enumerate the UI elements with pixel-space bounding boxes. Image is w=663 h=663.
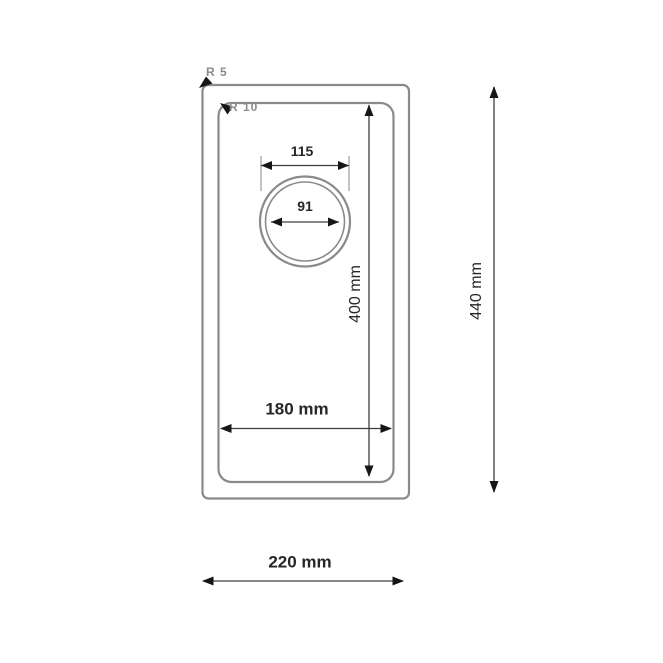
- dim-91-arrow-left-icon: [271, 218, 282, 227]
- dim-91-arrow-right-icon: [328, 218, 339, 227]
- dim-400: [365, 105, 374, 478]
- r10-callout-label: R 10: [229, 101, 258, 113]
- dim-440-arrow-top-icon: [490, 86, 499, 98]
- dim-115: [261, 156, 349, 191]
- dim-180-arrow-right-icon: [381, 424, 393, 433]
- dim-220-label: 220 mm: [268, 554, 331, 571]
- dim-400-arrow-top-icon: [365, 105, 374, 117]
- dim-180-arrow-left-icon: [220, 424, 232, 433]
- dim-400-label: 400 mm: [347, 262, 365, 326]
- dim-220-arrow-right-icon: [393, 577, 405, 586]
- sink-dimension-drawing: R 5 R 10 115 91 400 mm 440 mm 180 mm 220…: [0, 0, 663, 663]
- dim-220-arrow-left-icon: [202, 577, 214, 586]
- dim-440-arrow-bottom-icon: [490, 481, 499, 493]
- radius-callout-arrows: [199, 77, 233, 115]
- dim-115-arrow-right-icon: [338, 161, 349, 170]
- dim-440-label: 440 mm: [468, 259, 486, 323]
- dim-115-label: 115: [286, 142, 319, 160]
- dim-180-label: 180 mm: [265, 401, 328, 418]
- dim-180: [220, 424, 392, 433]
- dim-91: [271, 218, 339, 227]
- dim-220: [202, 577, 404, 586]
- dim-440: [490, 86, 499, 493]
- r5-callout-label: R 5: [206, 66, 228, 78]
- dim-91-label: 91: [292, 197, 318, 215]
- dim-115-arrow-left-icon: [261, 161, 272, 170]
- dim-400-arrow-bottom-icon: [365, 466, 374, 478]
